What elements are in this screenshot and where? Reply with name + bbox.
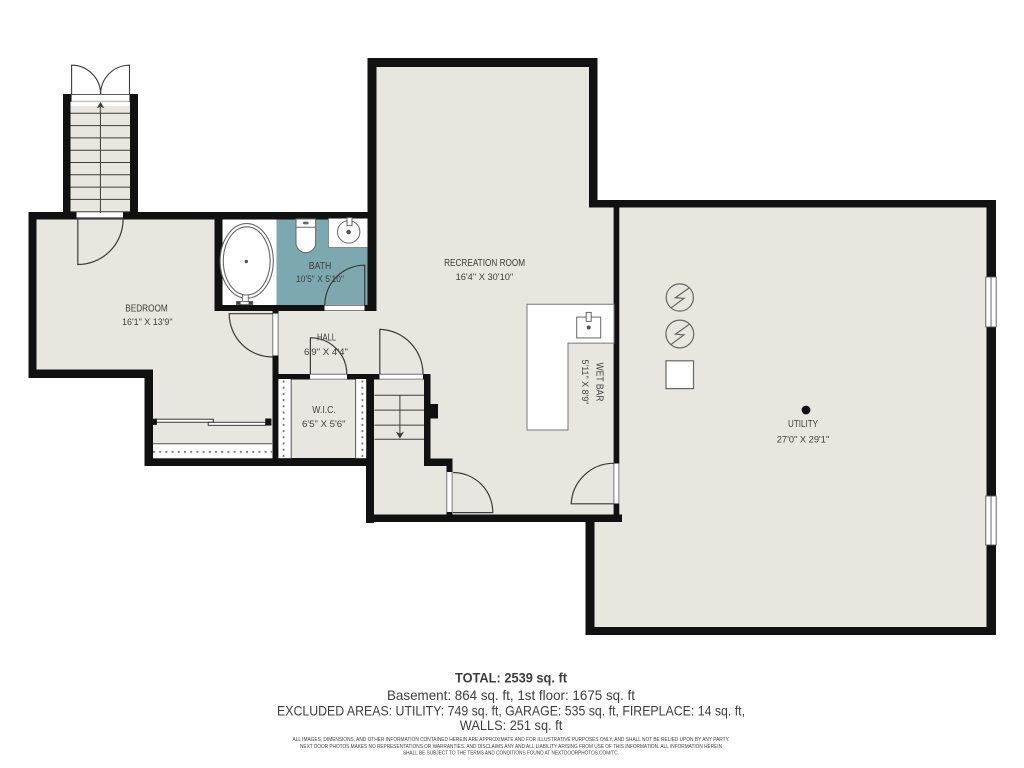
svg-text:WALLS: 251 sq. ft: WALLS: 251 sq. ft <box>460 718 563 733</box>
svg-text:TOTAL: 2539 sq. ft: TOTAL: 2539 sq. ft <box>455 671 567 687</box>
svg-text:16'1" X 13'9": 16'1" X 13'9" <box>122 317 173 327</box>
svg-text:ALL IMAGES, DIMENSIONS, AND OT: ALL IMAGES, DIMENSIONS, AND OTHER INFORM… <box>293 737 730 743</box>
svg-text:BEDROOM: BEDROOM <box>125 303 168 314</box>
svg-text:EXCLUDED AREAS: UTILITY: 749 s: EXCLUDED AREAS: UTILITY: 749 sq. ft, GAR… <box>277 703 745 718</box>
svg-text:6'9" X 4'4": 6'9" X 4'4" <box>304 347 348 357</box>
svg-text:RECREATION ROOM: RECREATION ROOM <box>444 258 525 269</box>
svg-text:6'5" X 5'6": 6'5" X 5'6" <box>302 419 346 429</box>
svg-text:WET BAR: WET BAR <box>594 363 605 402</box>
svg-text:HALL: HALL <box>317 332 336 343</box>
svg-text:Basement: 864 sq. ft, 1st floo: Basement: 864 sq. ft, 1st floor: 1675 sq… <box>387 688 635 703</box>
svg-text:W.I.C.: W.I.C. <box>312 405 336 416</box>
svg-text:5'11" X 8'9": 5'11" X 8'9" <box>580 360 590 405</box>
svg-text:16'4" X 30'10": 16'4" X 30'10" <box>456 272 514 282</box>
svg-text:NEXT DOOR PHOTOS MAKES NO REPR: NEXT DOOR PHOTOS MAKES NO REPRESENTATION… <box>300 744 722 750</box>
svg-text:27'0" X 29'1": 27'0" X 29'1" <box>777 434 830 444</box>
svg-text:UTILITY: UTILITY <box>788 419 818 430</box>
svg-text:10'5" X 5'10": 10'5" X 5'10" <box>296 274 344 284</box>
svg-text:BATH: BATH <box>309 261 332 272</box>
svg-text:SHALL BE SUBJECT TO THE TERMS: SHALL BE SUBJECT TO THE TERMS AND CONDIT… <box>403 750 619 756</box>
